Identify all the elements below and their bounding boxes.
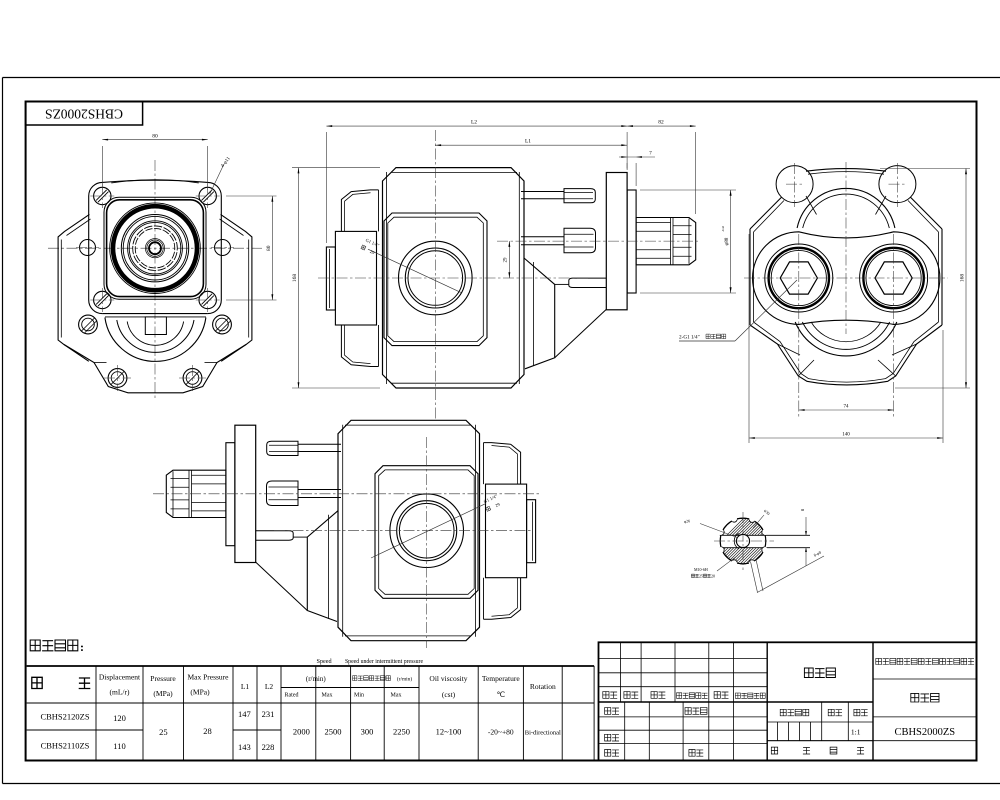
svg-text:Speed: Speed	[316, 658, 332, 665]
svg-text:28: 28	[203, 726, 212, 736]
svg-text:M10-6H: M10-6H	[694, 567, 708, 572]
svg-text:(cst): (cst)	[442, 690, 456, 699]
svg-text:231: 231	[262, 709, 275, 719]
svg-text:110: 110	[113, 741, 125, 751]
svg-text:74: 74	[844, 405, 850, 410]
svg-text:-20~+80: -20~+80	[488, 728, 514, 737]
svg-text:168: 168	[959, 274, 965, 283]
svg-text:CBHS2110ZS: CBHS2110ZS	[41, 741, 90, 751]
svg-text:20: 20	[711, 574, 715, 579]
svg-text:(r/min): (r/min)	[306, 675, 326, 683]
svg-text:-0.43: -0.43	[721, 225, 725, 232]
svg-text:168: 168	[292, 274, 298, 283]
svg-text:120: 120	[113, 713, 126, 723]
svg-text:(r/min): (r/min)	[397, 676, 412, 683]
svg-text:29: 29	[504, 257, 509, 263]
svg-text:CBHS2120ZS: CBHS2120ZS	[40, 712, 89, 722]
svg-text:2250: 2250	[393, 727, 410, 737]
svg-text:Max: Max	[322, 693, 333, 699]
svg-text:25: 25	[159, 727, 168, 737]
svg-text:80: 80	[152, 133, 158, 139]
svg-text:Max Pressure: Max Pressure	[187, 673, 229, 682]
svg-text:Min: Min	[354, 693, 364, 699]
svg-text::: :	[80, 640, 84, 654]
svg-text:Displacement: Displacement	[99, 673, 141, 682]
svg-text:12~100: 12~100	[436, 727, 462, 737]
svg-text:(MPa): (MPa)	[153, 689, 173, 698]
svg-text:Rated: Rated	[285, 693, 299, 699]
svg-text:140: 140	[842, 433, 850, 438]
svg-text:Temperature: Temperature	[482, 674, 520, 683]
svg-text:2000: 2000	[293, 727, 310, 737]
svg-text:143: 143	[238, 742, 251, 752]
svg-text:φ26: φ26	[683, 518, 690, 524]
svg-text:1:1: 1:1	[851, 728, 861, 737]
svg-text:L1: L1	[525, 139, 531, 145]
svg-text:25: 25	[699, 574, 703, 579]
svg-text:L1: L1	[241, 682, 250, 691]
svg-text:Speed under intermittent press: Speed under intermittent pressure	[345, 659, 424, 665]
svg-text:φ88: φ88	[725, 237, 730, 245]
svg-text:Bi-directional: Bi-directional	[525, 730, 561, 737]
svg-text:80: 80	[266, 245, 272, 251]
svg-text:2500: 2500	[325, 727, 342, 737]
svg-text:Rotation: Rotation	[530, 682, 556, 691]
svg-text:(MPa): (MPa)	[190, 688, 210, 697]
svg-text:82: 82	[658, 120, 664, 126]
svg-text:Oil viscosity: Oil viscosity	[429, 674, 467, 683]
svg-text:Pressure: Pressure	[150, 674, 176, 683]
svg-text:(mL/r): (mL/r)	[110, 688, 130, 697]
svg-text:℃: ℃	[497, 690, 506, 699]
svg-text:CBHS2000ZS: CBHS2000ZS	[894, 727, 955, 738]
svg-text:228: 228	[262, 742, 275, 752]
svg-text:L2: L2	[471, 120, 477, 126]
svg-text:L2: L2	[265, 682, 274, 691]
svg-text:147: 147	[238, 709, 251, 719]
svg-text:2-G1 1/4″: 2-G1 1/4″	[679, 335, 700, 341]
svg-text:300: 300	[361, 727, 374, 737]
svg-text:Max: Max	[391, 693, 402, 699]
svg-text:CBHS2000ZS: CBHS2000ZS	[45, 106, 123, 121]
